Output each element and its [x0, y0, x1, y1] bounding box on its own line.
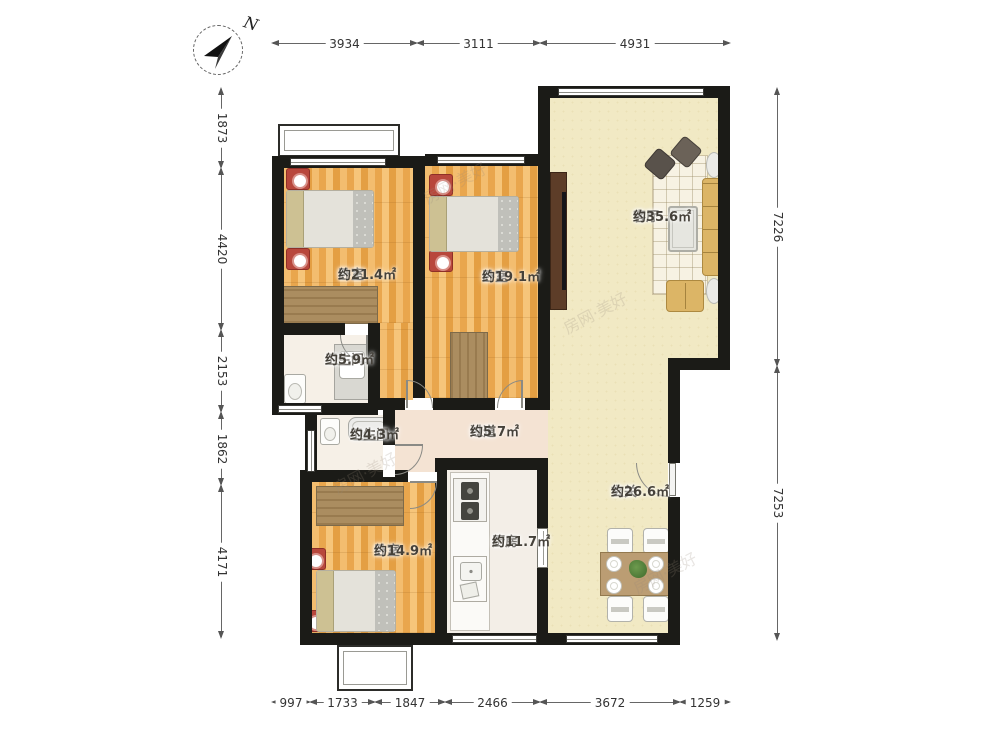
window — [278, 405, 322, 413]
window — [307, 430, 315, 472]
nightstand — [429, 250, 453, 272]
dining-chair — [643, 596, 669, 622]
floor-plan-canvas: N 卧室 约21.4㎡ 卧室 约19.1㎡ 客厅 约35.6㎡ 卫生间 约5.9… — [0, 0, 1000, 750]
wall — [368, 398, 405, 410]
room-area: 约14.9㎡ — [374, 544, 432, 561]
room-area: 约5.7㎡ — [470, 425, 519, 442]
plate — [606, 556, 622, 572]
wardrobe — [450, 332, 488, 406]
dining-chair — [643, 528, 669, 554]
kitchen-sink — [453, 556, 487, 602]
wall — [538, 86, 550, 410]
room-area: 约35.6㎡ — [633, 210, 691, 227]
toilet — [284, 374, 306, 404]
wall — [435, 458, 548, 470]
floor-plan: 卧室 约21.4㎡ 卧室 约19.1㎡ 客厅 约35.6㎡ 卫生间 约5.9㎡ … — [0, 0, 1000, 750]
door-swing-arc — [410, 482, 437, 509]
door-leaf — [410, 481, 437, 483]
double-bed — [286, 190, 374, 248]
room-area: 约21.4㎡ — [338, 268, 396, 285]
plate — [606, 578, 622, 594]
room-area: 约26.6㎡ — [611, 485, 669, 502]
bedroom1-floor — [380, 323, 413, 410]
compass: N — [193, 25, 243, 75]
entry-door-leaf — [669, 463, 676, 496]
dining-chair — [607, 528, 633, 554]
room-area: 约4.3㎡ — [350, 428, 399, 445]
wall — [272, 156, 284, 415]
compass-needle-icon — [196, 28, 242, 74]
tv — [562, 192, 566, 290]
room-area: 约11.7㎡ — [492, 535, 550, 552]
watermark: 房网·美好 — [558, 285, 630, 339]
dining-chair — [607, 596, 633, 622]
wall — [435, 458, 447, 645]
stove — [453, 478, 487, 522]
wall — [272, 323, 345, 335]
wall — [680, 358, 730, 370]
room-area: 约19.1㎡ — [482, 270, 540, 287]
window — [566, 635, 658, 643]
wall — [537, 470, 548, 528]
door-leaf — [406, 380, 408, 408]
wall — [433, 398, 495, 410]
toilet — [320, 418, 340, 445]
balcony-bay-window — [278, 124, 400, 157]
door-leaf — [395, 444, 423, 446]
wall — [300, 470, 312, 645]
bay-window — [337, 645, 413, 691]
wall — [537, 568, 548, 633]
wardrobe — [278, 286, 378, 324]
room-area: 约5.9㎡ — [325, 353, 374, 370]
nightstand — [286, 248, 310, 270]
armchair — [666, 280, 704, 312]
nightstand — [286, 168, 310, 190]
window — [558, 88, 704, 96]
double-bed — [429, 196, 519, 252]
door-opening — [345, 325, 368, 335]
wardrobe — [316, 486, 404, 526]
window — [452, 635, 537, 643]
double-bed — [316, 570, 396, 632]
door-opening — [405, 400, 433, 410]
door-opening — [495, 400, 523, 410]
window — [290, 158, 386, 166]
wall — [668, 358, 680, 463]
wall — [718, 86, 730, 370]
door-leaf — [521, 380, 523, 408]
